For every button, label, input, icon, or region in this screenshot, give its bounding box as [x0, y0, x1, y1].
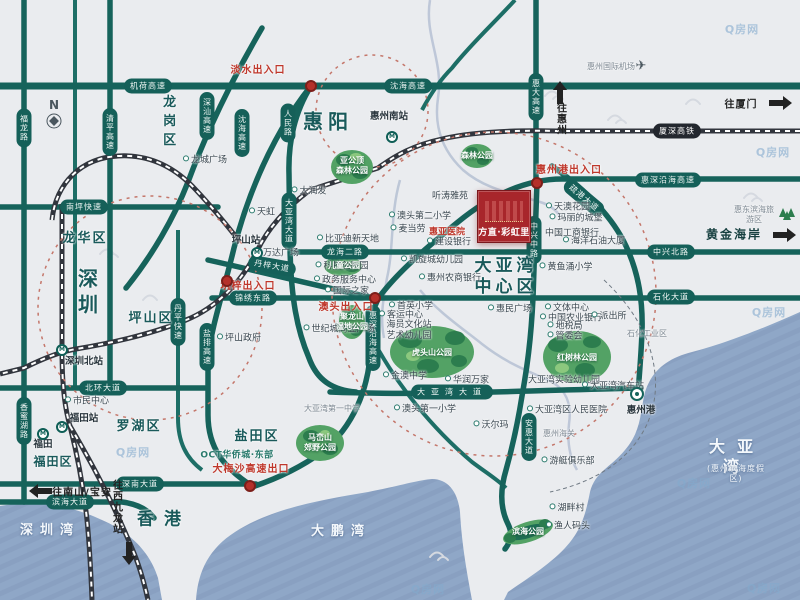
- junction-dot-icon: [531, 177, 543, 189]
- poi-label-text: 惠民广场: [496, 304, 532, 314]
- pdot-icon: [401, 255, 407, 261]
- project-name: 方直·彩虹里: [478, 225, 529, 238]
- poi-label-text: 文体中心: [553, 303, 589, 313]
- park-label-text: 滨海公园: [512, 527, 544, 536]
- poi-label: 比亚迪新天地: [317, 234, 379, 245]
- direction-label: 黄金海岸: [706, 226, 762, 243]
- station-label-text: 惠州南站: [370, 111, 408, 122]
- pdot-icon: [545, 303, 551, 309]
- pdot-icon: [591, 311, 597, 317]
- pdot-icon: [325, 286, 331, 292]
- pdot-icon: [65, 396, 71, 402]
- region-label-text: 龙岗区: [160, 95, 175, 152]
- road-label-text: 大亚湾大道: [417, 388, 487, 397]
- poi-label: 大亚湾第一中学: [304, 404, 360, 414]
- poi-label-text: 天虹: [257, 207, 275, 217]
- metro-icon: [56, 344, 68, 356]
- poi-label: 惠民广场: [488, 304, 532, 315]
- pdot-icon: [315, 261, 321, 267]
- poi-label: 天澳花园: [546, 202, 590, 213]
- pdot-icon: [547, 331, 553, 337]
- road-label: 香蜜湖路: [17, 397, 32, 445]
- poi-label: 海员文化站 艺术幼儿园: [386, 320, 431, 343]
- junction-dot-icon: [305, 80, 317, 92]
- water-label-text: 大鹏湾: [311, 524, 371, 539]
- road-label-text: 安惠大道: [525, 419, 534, 455]
- compass-star-icon: [47, 114, 61, 128]
- poi-label-text: 政务服务中心: [322, 275, 376, 285]
- region-label-text: 盐田区: [234, 429, 279, 444]
- poi-label-text: 黄鱼涌小学: [547, 262, 592, 272]
- map-canvas: 惠阳深圳龙岗区龙华区坪山区罗湖区福田区盐田区香港大亚湾 中心区深圳湾大鹏湾大亚湾…: [0, 0, 800, 600]
- poi-label: 玛丽的城堡: [549, 213, 602, 224]
- road-label: 南坪快速: [60, 200, 108, 215]
- poi-label-text: 惠州农商银行: [427, 273, 481, 283]
- compass: N: [47, 98, 61, 128]
- metro-icon: [56, 421, 68, 433]
- region-label: 深圳: [74, 268, 99, 320]
- poi-label: 沃尔玛: [473, 420, 508, 431]
- region-label: 龙岗区: [159, 95, 175, 152]
- pdot-icon: [389, 301, 395, 307]
- region-label-text: 龙华区: [62, 231, 107, 246]
- poi-label-text: 沃尔玛: [481, 420, 508, 430]
- poi-label-text: 湖畔村: [557, 503, 584, 513]
- poi-label-text: 坪山政府: [225, 333, 261, 343]
- pdot-icon: [546, 521, 552, 527]
- water-label-text: 深圳湾: [20, 523, 80, 538]
- poi-label-text: 惠亚医院: [429, 227, 465, 237]
- poi-label: 龙城广场: [183, 155, 227, 166]
- poi-label: 派出所: [591, 311, 626, 322]
- pdot-icon: [419, 273, 425, 279]
- road-label-text: 深南大道: [122, 480, 158, 489]
- junction-dot-icon: [369, 292, 381, 304]
- airplane-icon-text: ✈: [636, 59, 647, 74]
- road-label: 沈海高速: [384, 79, 432, 94]
- watermark: Q房网: [747, 580, 781, 596]
- road-label-text: 惠大高速: [532, 79, 541, 115]
- poi-label-text: 大润发: [299, 186, 326, 196]
- pdot-icon: [488, 304, 494, 310]
- road-label: 安惠大道: [522, 413, 537, 461]
- poi-label-text: 比亚迪新天地: [325, 234, 379, 244]
- station-label-text: 惠州港: [627, 405, 656, 416]
- entrance-label: 淡水出入口: [231, 65, 286, 78]
- poi-label-text: 管委会: [555, 331, 582, 341]
- poi-label-text: 天澳花园: [554, 202, 590, 212]
- poi-label: 坪山政府: [217, 333, 261, 344]
- map-labels-layer: 惠阳深圳龙岗区龙华区坪山区罗湖区福田区盐田区香港大亚湾 中心区深圳湾大鹏湾大亚湾…: [0, 0, 800, 600]
- watermark-text: Q房网: [756, 146, 790, 159]
- station-label: 福田站: [70, 413, 99, 425]
- direction-label-text: 往厦门: [725, 100, 758, 111]
- park-label: 亚公顶 森林公园: [336, 156, 368, 176]
- poi-label: 澳头第二小学: [389, 211, 451, 222]
- poi-label: 黄鱼涌小学: [539, 262, 592, 273]
- region-label-text: 惠阳: [303, 110, 353, 134]
- pdot-icon: [383, 371, 389, 377]
- poi-label-text: 大亚湾区人民医院: [535, 405, 607, 415]
- poi-label: 澳头第一小学: [394, 404, 456, 415]
- pdot-icon: [390, 224, 396, 230]
- road-label-text: 沈海高速: [390, 82, 426, 91]
- road-label-text: 清平高速: [106, 114, 115, 150]
- road-label-text: 深汕高速: [203, 98, 212, 134]
- poi-label-text: 玛丽的城堡: [557, 213, 602, 223]
- poi-label: 听涛雅苑: [432, 191, 468, 202]
- pdot-icon: [540, 313, 546, 319]
- compass-north-label: N: [47, 98, 61, 112]
- region-label: 大亚湾 中心区: [475, 256, 538, 299]
- poi-label-text: 石化工业区: [627, 329, 667, 338]
- direction-arrow-left-icon: [38, 488, 52, 494]
- watermark: Q房网: [756, 144, 790, 160]
- station-label-text: 坪山站: [232, 235, 261, 246]
- water-label: 深圳湾: [20, 523, 80, 539]
- water-label-text: (惠州滨海度假区): [707, 464, 765, 483]
- road-label-text: 龙海二路: [327, 248, 363, 257]
- station-label-text: 福田: [33, 439, 52, 450]
- direction-label: 往厦门: [725, 96, 758, 111]
- road-label: 福龙路: [17, 109, 32, 148]
- water-label: (惠州滨海度假区): [704, 464, 768, 484]
- direction-arrow-up-icon: [557, 90, 563, 104]
- poi-label-text: 麦当劳: [398, 224, 425, 234]
- road-label: 深汕高速: [200, 92, 215, 140]
- poi-label: OCT华侨城·东部: [200, 450, 273, 461]
- pdot-icon: [303, 324, 309, 330]
- region-label: 龙华区: [62, 231, 107, 247]
- road-label: 惠深沿海高速: [635, 173, 701, 188]
- pdot-icon: [249, 207, 255, 213]
- region-label: 坪山区: [128, 311, 173, 327]
- road-label: 龙海二路: [321, 245, 369, 260]
- road-label-text: 石化大道: [653, 293, 689, 302]
- pdot-icon: [314, 275, 320, 281]
- port-icon: [630, 387, 644, 401]
- pdot-icon: [445, 375, 451, 381]
- region-label: 福田区: [33, 455, 72, 470]
- pdot-icon: [546, 202, 552, 208]
- park-label-text: 亚公顶 森林公园: [336, 156, 368, 175]
- station-label: 坪山站: [232, 235, 261, 247]
- poi-label: 华润万家: [445, 375, 489, 386]
- station-label: 福田: [33, 439, 52, 451]
- poi-label-text: 金澳中学: [391, 371, 427, 381]
- pdot-icon: [394, 404, 400, 410]
- park-label: 虎头山公园: [412, 348, 452, 358]
- poi-label-text: 市民中心: [73, 396, 109, 406]
- poi-label-text: 渔人码头: [554, 521, 590, 531]
- direction-label-text: 往惠州: [555, 103, 566, 136]
- metro-icon: [251, 247, 263, 259]
- direction-label-text: 往南山/宝安: [52, 488, 112, 499]
- direction-arrow-right-icon: [773, 232, 787, 238]
- pdot-icon: [547, 321, 553, 327]
- direction-label-text: 黄金海岸: [706, 228, 762, 242]
- pdot-icon: [389, 211, 395, 217]
- road-label: 中兴北路: [647, 245, 695, 260]
- park-label: 马峦山 郊野公园: [304, 433, 336, 453]
- poi-label-text: 听涛雅苑: [432, 191, 468, 201]
- road-label-text: 机荷高速: [130, 82, 166, 91]
- park-label-text: 马峦山 郊野公园: [304, 433, 336, 452]
- watermark-text: Q房网: [116, 446, 150, 459]
- direction-label-text: 往西九龙站: [111, 480, 122, 535]
- poi-label-text: 澳头第二小学: [397, 211, 451, 221]
- park-label-text: 儿童公园: [328, 261, 360, 270]
- road-label-text: 南坪快速: [66, 203, 102, 212]
- region-label-text: 深圳: [75, 268, 99, 320]
- watermark: Q房网: [677, 475, 711, 491]
- road-label: 惠大高速: [529, 73, 544, 121]
- poi-label-text: 万达广场: [263, 248, 299, 258]
- pdot-icon: [563, 236, 569, 242]
- region-label: 香港: [137, 509, 191, 530]
- road-label-text: 滨海大道: [52, 498, 88, 507]
- pdot-icon: [473, 420, 479, 426]
- airport-label: 惠州国际机场: [587, 62, 635, 72]
- project-building-icon: [485, 201, 524, 222]
- park-label-text: 聚龙山 湿地公园: [336, 312, 368, 331]
- road-label: 石化大道: [647, 290, 695, 305]
- poi-label: 石化工业区: [627, 329, 667, 339]
- region-label-text: 福田区: [33, 455, 72, 469]
- park-label: 儿童公园: [328, 261, 360, 271]
- road-label-text: 香蜜湖路: [20, 403, 29, 439]
- poi-label: 惠州海关: [543, 429, 575, 439]
- airport-label-text: 惠州国际机场: [587, 62, 635, 71]
- poi-label: 游艇俱乐部: [541, 456, 594, 467]
- poi-label: 麦当劳: [390, 224, 425, 235]
- watermark-text: Q房网: [411, 583, 445, 596]
- watermark: Q房网: [752, 304, 786, 320]
- metro-icon: [386, 131, 398, 143]
- road-label-text: 盐排高速: [203, 329, 212, 365]
- railway-label: 厦深高铁: [653, 124, 701, 139]
- poi-label-text: 龙城广场: [191, 155, 227, 165]
- entrance-label-text: 淡水出入口: [231, 65, 286, 76]
- road-label-text: 北环大道: [85, 384, 121, 393]
- railway-label-text: 厦深高铁: [659, 127, 695, 136]
- watermark-text: Q房网: [725, 23, 759, 36]
- pdot-icon: [217, 333, 223, 339]
- pdot-icon: [549, 503, 555, 509]
- direction-arrow-right-icon: [769, 100, 783, 106]
- region-label-text: 坪山区: [128, 311, 173, 326]
- pdot-icon: [317, 234, 323, 240]
- poi-label: 海洋石油大厦: [563, 236, 625, 247]
- poi-label-text: 海洋石油大厦: [571, 236, 625, 246]
- airplane-icon: ✈: [636, 59, 647, 74]
- watermark-text: Q房网: [677, 477, 711, 490]
- road-label-text: 丹平快速: [174, 304, 183, 340]
- road-label: 大亚湾大道: [411, 385, 493, 400]
- poi-label: 市民中心: [65, 396, 109, 407]
- poi-label-text: 国际之家: [333, 286, 369, 296]
- park-label: 滨海公园: [512, 527, 544, 537]
- poi-label-text: OCT华侨城·东部: [200, 450, 273, 460]
- road-label-text: 福龙路: [20, 115, 29, 142]
- junction-dot-icon: [244, 480, 256, 492]
- road-label-text: 大亚湾大道: [285, 199, 294, 244]
- poi-label-text: 凯旋城幼儿园: [409, 255, 463, 265]
- watermark-text: Q房网: [752, 306, 786, 319]
- watermark: Q房网: [725, 21, 759, 37]
- park-label: 红树林公园: [557, 353, 597, 363]
- poi-label: 政务服务中心: [314, 275, 376, 286]
- road-label: 盐排高速: [200, 323, 215, 371]
- park-label: 森林公园: [461, 151, 493, 161]
- pdot-icon: [427, 237, 433, 243]
- poi-label-text: 澳头第一小学: [402, 404, 456, 414]
- road-label-text: 人民路: [284, 110, 293, 137]
- road-label-text: 锦绣东路: [235, 294, 271, 303]
- direction-label: 往西九龙站: [109, 480, 124, 535]
- poi-label: 建设银行: [427, 237, 471, 248]
- poi-label-text: 华润万家: [453, 375, 489, 385]
- pdot-icon: [549, 213, 555, 219]
- entrance-label: 大梅沙高速出口: [213, 464, 290, 477]
- region-label: 惠阳: [303, 110, 353, 135]
- watermark: Q房网: [116, 444, 150, 460]
- project-marker: 方直·彩虹里: [477, 190, 531, 243]
- poi-label: 惠州农商银行: [419, 273, 481, 284]
- park-label-text: 红树林公园: [557, 353, 597, 362]
- direction-label: 往南山/宝安: [52, 484, 112, 499]
- poi-label: 国际之家: [325, 286, 369, 297]
- station-label: 惠州港: [627, 405, 656, 417]
- region-label: 盐田区: [234, 429, 279, 445]
- pdot-icon: [539, 262, 545, 268]
- region-label-text: 香港: [137, 509, 191, 529]
- pdot-icon: [582, 381, 588, 387]
- poi-label: 湖畔村: [549, 503, 584, 514]
- entrance-label-text: 大梅沙高速出口: [213, 464, 290, 475]
- region-label-text: 罗湖区: [116, 419, 161, 434]
- poi-label-text: 建设银行: [435, 237, 471, 247]
- poi-label-text: 地税局: [555, 321, 582, 331]
- poi-label-text: 海员文化站 艺术幼儿园: [386, 320, 431, 341]
- park-label-text: 森林公园: [461, 151, 493, 160]
- station-label: 惠州南站: [370, 111, 408, 123]
- pdot-icon: [541, 456, 547, 462]
- poi-label: 金澳中学: [383, 371, 427, 382]
- poi-label: 惠东滨海旅游区: [731, 205, 777, 225]
- poi-label-text: 游艇俱乐部: [549, 456, 594, 466]
- poi-label-text: 惠东滨海旅游区: [734, 205, 774, 224]
- station-label: 深圳北站: [65, 356, 103, 368]
- road-label: 人民路: [281, 104, 296, 143]
- poi-label: 大亚湾区人民医院: [527, 405, 607, 416]
- road-label: 沈海高速: [235, 109, 250, 157]
- pdot-icon: [379, 310, 385, 316]
- direction-arrow-down-icon: [126, 542, 132, 556]
- poi-label: 大润发: [291, 186, 326, 197]
- road-label-text: 中兴北路: [653, 248, 689, 257]
- poi-label-text: 大亚湾第一中学: [304, 404, 360, 413]
- junction-dot-icon: [221, 275, 233, 287]
- road-label-text: 惠深沿海高速: [369, 311, 378, 365]
- poi-label: 天虹: [249, 207, 275, 218]
- poi-label: 渔人码头: [546, 521, 590, 532]
- park-label: 聚龙山 湿地公园: [336, 312, 368, 332]
- station-label-text: 深圳北站: [65, 356, 103, 367]
- watermark-text: Q房网: [747, 582, 781, 595]
- watermark: Q房网: [411, 581, 445, 597]
- road-label: 清平高速: [103, 108, 118, 156]
- park-label-text: 虎头山公园: [412, 348, 452, 357]
- pdot-icon: [291, 186, 297, 192]
- region-label-text: 大亚湾 中心区: [475, 256, 538, 297]
- road-label-text: 丹梓大道: [253, 258, 290, 273]
- metro-icon: [37, 428, 49, 440]
- poi-label-text: 惠州海关: [543, 429, 575, 438]
- pdot-icon: [527, 405, 533, 411]
- road-label: 大亚湾大道: [282, 193, 297, 250]
- pdot-icon: [183, 155, 189, 161]
- road-label: 机荷高速: [124, 79, 172, 94]
- station-label-text: 福田站: [70, 413, 99, 424]
- direction-label: 往惠州: [553, 103, 568, 136]
- road-label-text: 沈海高速: [238, 115, 247, 151]
- entrance-label-text: 惠州港出入口: [536, 165, 602, 176]
- poi-label: 凯旋城幼儿园: [401, 255, 463, 266]
- entrance-label: 惠州港出入口: [536, 165, 602, 178]
- poi-label-text: 派出所: [599, 311, 626, 321]
- road-label: 北环大道: [79, 381, 127, 396]
- road-label-text: 惠深沿海高速: [641, 176, 695, 185]
- poi-label: 管委会: [547, 331, 582, 342]
- region-label: 罗湖区: [116, 419, 161, 435]
- water-label: 大鹏湾: [311, 524, 371, 540]
